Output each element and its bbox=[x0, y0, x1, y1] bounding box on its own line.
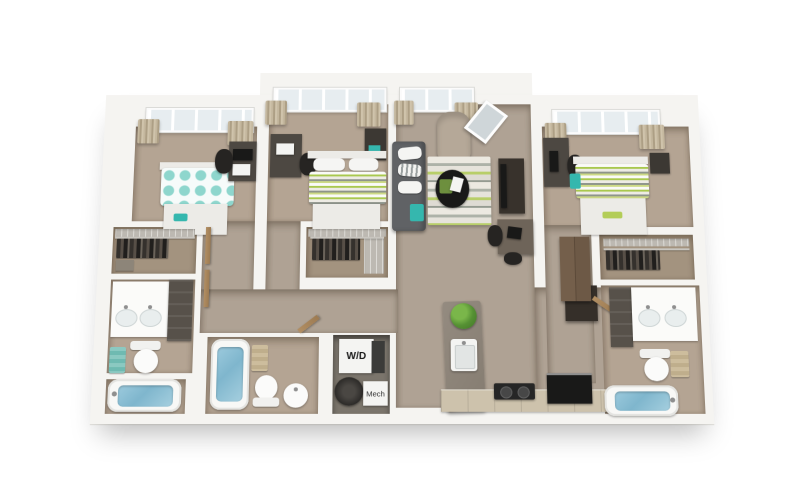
bath-right-towels bbox=[670, 351, 689, 377]
bed-right-blanket bbox=[575, 164, 649, 198]
bed-middle-blanket bbox=[309, 172, 386, 204]
washer-dryer-label: W/D bbox=[339, 339, 374, 373]
bath-left-tub-water bbox=[117, 385, 173, 406]
closet-left-shelf bbox=[115, 229, 195, 237]
bath-left-towels bbox=[109, 347, 126, 373]
bath-right-toilet-bowl bbox=[644, 357, 669, 381]
study-desk-laptop bbox=[507, 226, 522, 239]
bath-right-sink-1 bbox=[638, 309, 661, 327]
bed-middle-desk bbox=[270, 134, 302, 177]
bath-right-faucet-1 bbox=[646, 305, 650, 309]
bed-right-headboard bbox=[573, 157, 648, 165]
closet-right-clothes bbox=[606, 250, 661, 269]
hall-cross-floor bbox=[200, 289, 398, 333]
bedroom-right-curtain-right bbox=[639, 125, 666, 149]
cooktop bbox=[494, 383, 535, 399]
wardrobe bbox=[559, 237, 591, 301]
bath-left-cabinet bbox=[167, 280, 193, 341]
bed-middle-pillow-right bbox=[349, 158, 379, 170]
closet-left-storage bbox=[115, 260, 134, 271]
closet-middle-shelf bbox=[308, 229, 386, 237]
cooktop-burner-2 bbox=[517, 386, 530, 398]
sofa-pillow-1 bbox=[397, 146, 422, 161]
mech-label: Mech bbox=[363, 381, 388, 405]
bath-left-vanity bbox=[110, 282, 169, 337]
sofa-throw bbox=[410, 204, 424, 221]
closet-middle-clothes bbox=[312, 239, 360, 260]
accent-chair bbox=[437, 112, 471, 161]
cooktop-burner-1 bbox=[500, 386, 512, 398]
closet-middle-side-shelf bbox=[364, 239, 384, 274]
bath-right-cabinet bbox=[609, 287, 633, 347]
bed-right-nightstand bbox=[650, 153, 671, 174]
bath-right-sink-2 bbox=[664, 309, 687, 327]
bed-middle-headboard bbox=[308, 151, 387, 159]
bed-right-cushion bbox=[570, 174, 581, 189]
bedroom-middle-curtain-right bbox=[357, 102, 381, 126]
study-chair-left bbox=[487, 225, 502, 246]
closet-right-shelf bbox=[603, 239, 689, 247]
bath-right-faucet-2 bbox=[672, 305, 676, 309]
sofa-pillow-2 bbox=[398, 163, 423, 177]
tv-panel bbox=[500, 164, 507, 208]
water-heater bbox=[334, 377, 363, 405]
bath-right-tub-water bbox=[615, 391, 671, 410]
bedroom-middle-curtain-left bbox=[265, 101, 287, 125]
bath-middle-tub-water bbox=[216, 347, 244, 402]
floor-plan-stage: W/D Mech bbox=[0, 17, 800, 503]
refrigerator bbox=[547, 373, 593, 403]
bed-middle-desk-laptop bbox=[276, 143, 294, 154]
bed-right-monitor bbox=[549, 151, 558, 172]
living-room-curtain-left bbox=[394, 101, 414, 125]
sofa-pillow-3 bbox=[398, 181, 422, 193]
bed-middle-pillow-left bbox=[313, 158, 345, 170]
bath-middle-toilet-tank bbox=[253, 398, 280, 407]
closet-left-clothes bbox=[116, 239, 169, 258]
dryer-side-panel bbox=[371, 341, 384, 373]
bed-left-accent bbox=[173, 214, 187, 222]
island-sink-basin bbox=[455, 345, 476, 369]
bed-left-desk-papers bbox=[232, 164, 250, 175]
bed-left-tv bbox=[233, 149, 253, 160]
island-sink-faucet bbox=[462, 341, 466, 345]
bath-right-tub-faucet bbox=[670, 398, 675, 403]
bed-right-foot-accent bbox=[602, 212, 622, 219]
bath-middle-towels bbox=[251, 345, 268, 371]
bed-left-blanket bbox=[160, 168, 234, 206]
bath-middle-sink-faucet bbox=[294, 387, 298, 391]
island-plant bbox=[450, 303, 477, 329]
study-chair-bottom bbox=[504, 252, 522, 265]
bedroom-left-curtain-left bbox=[137, 119, 160, 143]
bed-left-office-chair bbox=[215, 149, 233, 174]
